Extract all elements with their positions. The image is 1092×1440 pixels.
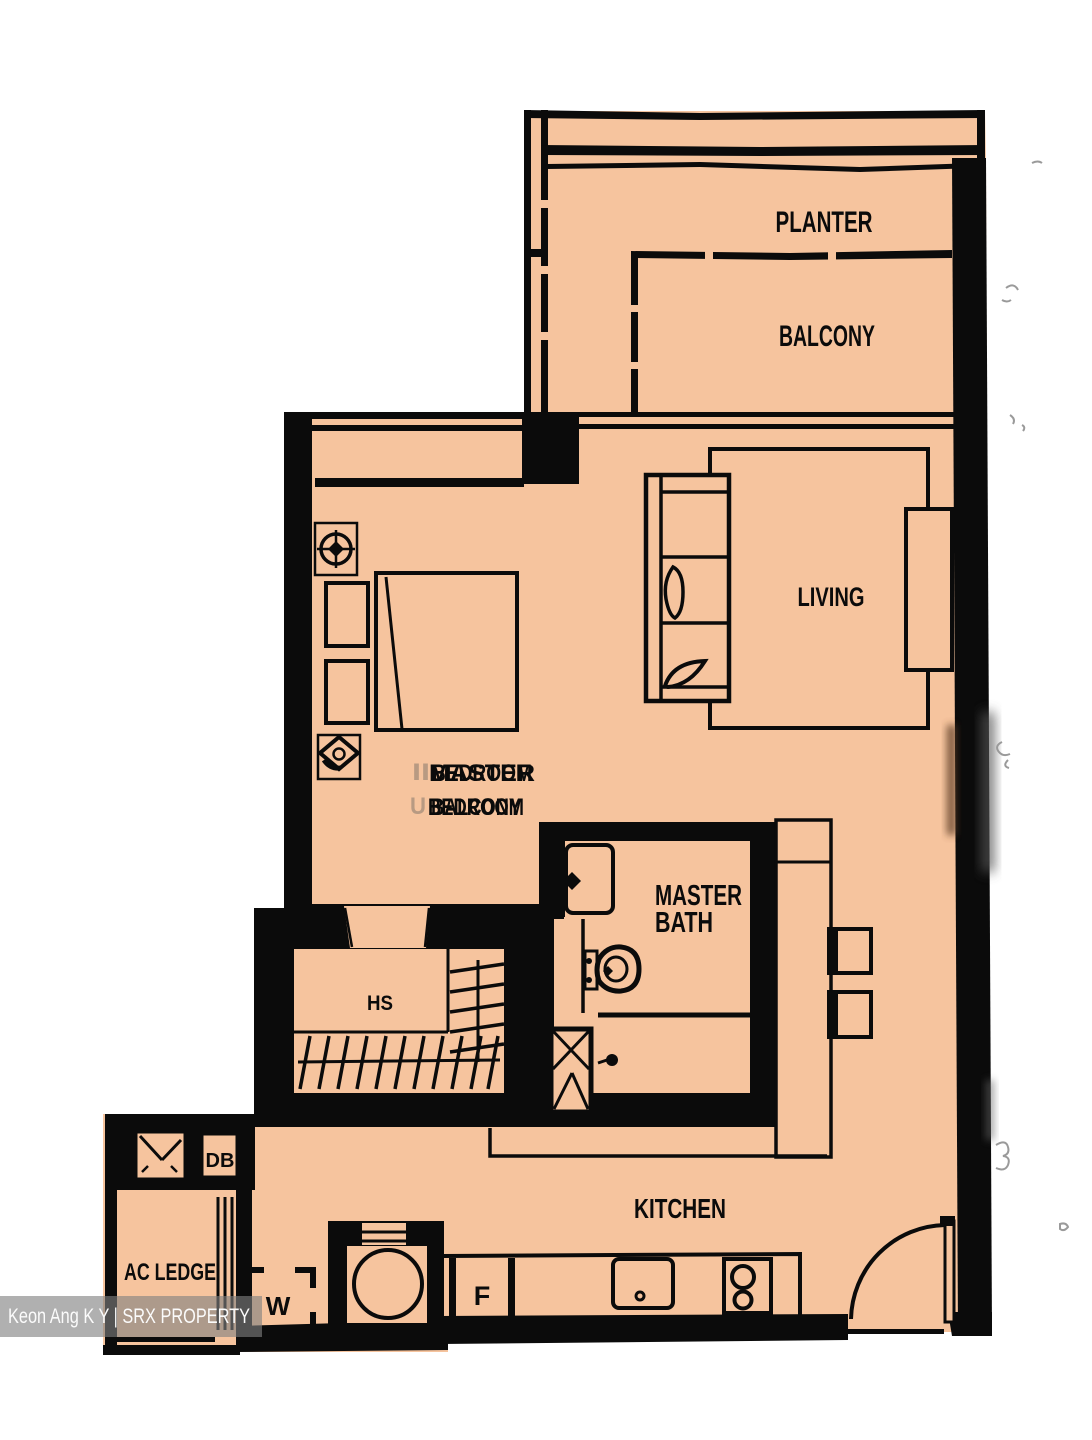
svg-text:BALCONY: BALCONY — [431, 794, 521, 821]
svg-text:W: W — [266, 1291, 291, 1321]
svg-text:F: F — [474, 1281, 491, 1311]
svg-text:DB: DB — [206, 1150, 235, 1172]
svg-text:BALCONY: BALCONY — [779, 320, 875, 353]
svg-text:LIVING: LIVING — [798, 582, 865, 612]
svg-text:KITCHEN: KITCHEN — [634, 1193, 726, 1224]
svg-text:II: II — [412, 759, 430, 786]
svg-text:AC LEDGE: AC LEDGE — [124, 1259, 216, 1286]
svg-text:Keon Ang K Y | SRX PROPERTY: Keon Ang K Y | SRX PROPERTY — [8, 1305, 250, 1328]
svg-text:U: U — [410, 793, 426, 820]
svg-text:HS: HS — [367, 992, 393, 1015]
svg-text:BATH: BATH — [655, 907, 713, 939]
svg-text:BEDROOM: BEDROOM — [432, 760, 532, 787]
svg-text:PLANTER: PLANTER — [776, 206, 873, 239]
